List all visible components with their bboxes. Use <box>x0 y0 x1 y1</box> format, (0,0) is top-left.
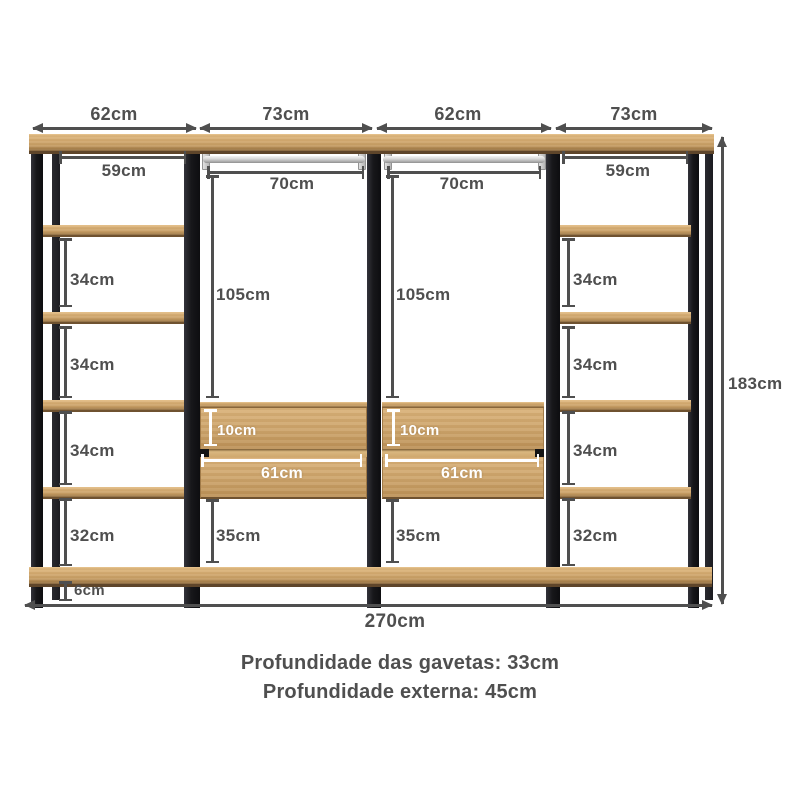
dim-right-gap4-line <box>567 499 570 565</box>
dim-drawer-width-left-line <box>202 459 361 462</box>
dim-total-height-line <box>721 137 724 604</box>
dim-drawer-height-right-line <box>392 410 395 445</box>
post-divider-2 <box>367 141 381 608</box>
dim-right-gap3-line <box>567 412 570 484</box>
dim-rod-right-label: 70cm <box>440 175 485 192</box>
dim-left-gap1-label: 34cm <box>70 271 115 288</box>
wardrobe-dimension-diagram: 62cm 73cm 62cm 73cm 59cm 59cm 70cm 70cm … <box>0 0 800 800</box>
post-divider-1 <box>184 141 200 608</box>
dim-left-gap2-line <box>64 327 67 397</box>
dim-drawer-height-left-label: 10cm <box>217 423 257 438</box>
dim-drawer-width-right-line <box>386 459 538 462</box>
dim-drawer-height-right-label: 10cm <box>400 423 440 438</box>
dim-hang-right-line <box>391 176 394 397</box>
shelf-left-2 <box>43 312 184 324</box>
dim-left-gap1-line <box>64 239 67 306</box>
dim-left-floor-label: 6cm <box>74 583 105 598</box>
dim-top-section-1-line <box>33 127 196 130</box>
hanging-rod-left <box>203 156 365 163</box>
post-divider-3 <box>546 141 560 608</box>
footer-drawer-depth: Profundidade das gavetas: 33cm <box>241 652 559 675</box>
dim-total-width-label: 270cm <box>365 612 426 631</box>
drawer-unit-left <box>200 402 367 498</box>
drawer-gap-right <box>382 449 544 457</box>
shelf-right-1 <box>560 225 691 237</box>
dim-right-gap4-label: 32cm <box>573 527 618 544</box>
dim-drawer-height-left-line <box>209 410 212 445</box>
dim-left-inner-width-label: 59cm <box>102 162 147 179</box>
drawer-gap-left <box>200 449 367 457</box>
dim-left-gap3-label: 34cm <box>70 442 115 459</box>
dim-left-gap3-line <box>64 412 67 484</box>
post-right-back <box>705 147 713 600</box>
dim-left-gap2-label: 34cm <box>70 356 115 373</box>
footer-external-depth: Profundidade externa: 45cm <box>263 681 537 704</box>
shelf-left-1 <box>43 225 184 237</box>
dim-top-section-4-line <box>556 127 712 130</box>
dim-top-section-2-line <box>200 127 372 130</box>
drawer-unit-right <box>382 402 544 498</box>
dim-top-section-1-label: 62cm <box>90 105 137 123</box>
dim-under-drawer-right-line <box>391 500 394 562</box>
dim-right-inner-width-label: 59cm <box>606 162 651 179</box>
top-shelf <box>29 134 714 154</box>
dim-right-gap2-line <box>567 327 570 397</box>
dim-right-gap1-label: 34cm <box>573 271 618 288</box>
dim-top-section-4-label: 73cm <box>610 105 657 123</box>
dim-drawer-width-right-label: 61cm <box>441 466 483 482</box>
post-left-back <box>52 147 60 600</box>
dim-left-floor-line <box>64 582 67 600</box>
dim-hang-left-line <box>211 176 214 397</box>
dim-left-gap4-label: 32cm <box>70 527 115 544</box>
dim-top-section-3-label: 62cm <box>434 105 481 123</box>
dim-right-gap1-line <box>567 239 570 306</box>
shelf-right-4 <box>560 487 691 499</box>
dim-left-gap4-line <box>64 499 67 565</box>
shelf-right-2 <box>560 312 691 324</box>
shelf-right-3 <box>560 400 691 412</box>
dim-drawer-width-left-label: 61cm <box>261 466 303 482</box>
dim-right-gap2-label: 34cm <box>573 356 618 373</box>
dim-top-section-2-label: 73cm <box>262 105 309 123</box>
dim-under-drawer-right-label: 35cm <box>396 527 441 544</box>
hanging-rod-right <box>383 156 545 163</box>
dim-left-inner-width-line <box>60 156 185 159</box>
dim-right-inner-width-line <box>563 156 687 159</box>
dim-total-width-line <box>25 604 712 607</box>
post-right-front <box>688 141 699 608</box>
post-left-front <box>31 141 43 608</box>
dim-top-section-3-line <box>377 127 551 130</box>
dim-right-gap3-label: 34cm <box>573 442 618 459</box>
dim-rod-left-label: 70cm <box>270 175 315 192</box>
dim-hang-left-label: 105cm <box>216 286 270 303</box>
dim-under-drawer-left-line <box>211 500 214 562</box>
dim-under-drawer-left-label: 35cm <box>216 527 261 544</box>
bottom-shelf <box>29 567 712 587</box>
dim-total-height-label: 183cm <box>728 375 782 392</box>
dim-hang-right-label: 105cm <box>396 286 450 303</box>
